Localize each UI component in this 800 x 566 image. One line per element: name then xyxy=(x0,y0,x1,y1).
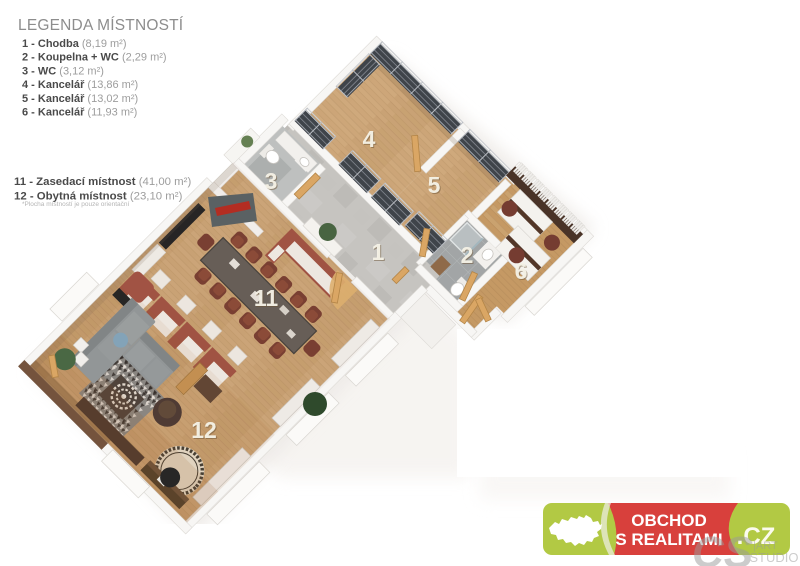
svg-text:4 - Kancelář (13,86 m²): 4 - Kancelář (13,86 m²) xyxy=(22,79,138,91)
svg-text:*Plocha místností je pouze ori: *Plocha místností je pouze orientační xyxy=(22,201,130,208)
svg-text:11: 11 xyxy=(254,285,279,311)
svg-text:5: 5 xyxy=(428,172,441,198)
svg-text:3: 3 xyxy=(265,168,278,194)
svg-text:|STUDIO: |STUDIO xyxy=(746,550,799,565)
svg-text:6 - Kancelář (11,93 m²): 6 - Kancelář (11,93 m²) xyxy=(22,107,137,119)
svg-text:11 - Zasedací místnost (41,00: 11 - Zasedací místnost (41,00 m²) xyxy=(14,176,191,188)
svg-text:LEGENDA MÍSTNOSTÍ: LEGENDA MÍSTNOSTÍ xyxy=(18,17,184,34)
svg-text:5 - Kancelář (13,02 m²): 5 - Kancelář (13,02 m²) xyxy=(22,93,138,105)
svg-text:1: 1 xyxy=(372,239,385,265)
svg-text:2: 2 xyxy=(461,242,474,268)
svg-text:1 - Chodba (8,19 m²): 1 - Chodba (8,19 m²) xyxy=(22,38,127,50)
svg-text:12: 12 xyxy=(191,417,217,443)
svg-text:4: 4 xyxy=(363,126,376,152)
svg-text:6: 6 xyxy=(515,258,528,284)
svg-text:CS: CS xyxy=(692,528,753,566)
svg-text:3 - WC (3,12 m²): 3 - WC (3,12 m²) xyxy=(22,65,104,77)
svg-text:2 - Koupelna + WC (2,29 m²): 2 - Koupelna + WC (2,29 m²) xyxy=(22,52,167,64)
